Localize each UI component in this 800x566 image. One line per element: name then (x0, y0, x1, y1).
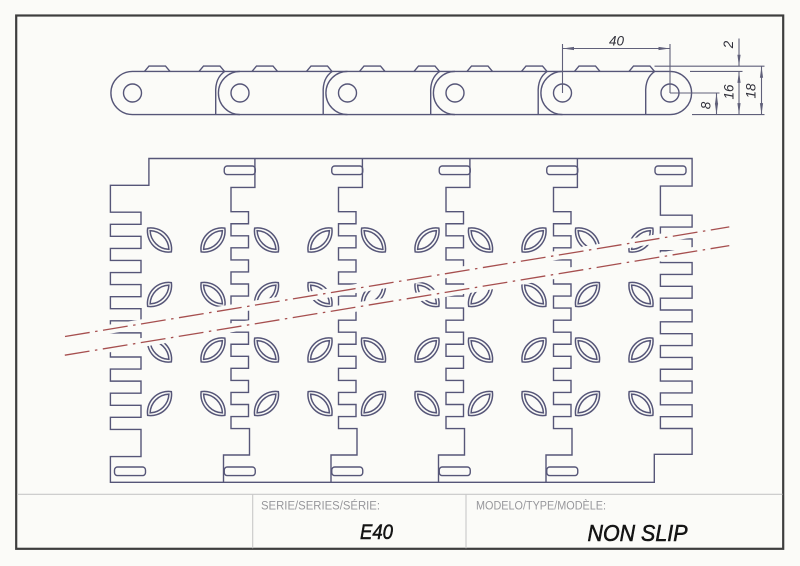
svg-text:MODELO/TYPE/MODÈLE:: MODELO/TYPE/MODÈLE: (476, 500, 606, 513)
svg-text:8: 8 (699, 101, 714, 109)
svg-text:18: 18 (744, 83, 759, 99)
svg-text:40: 40 (609, 34, 625, 49)
svg-text:16: 16 (722, 84, 737, 100)
svg-text:E40: E40 (360, 520, 393, 544)
svg-text:2: 2 (721, 40, 736, 49)
svg-text:NON SLIP: NON SLIP (588, 520, 689, 546)
svg-text:SERIE/SERIES/SÉRIE:: SERIE/SERIES/SÉRIE: (261, 500, 380, 513)
